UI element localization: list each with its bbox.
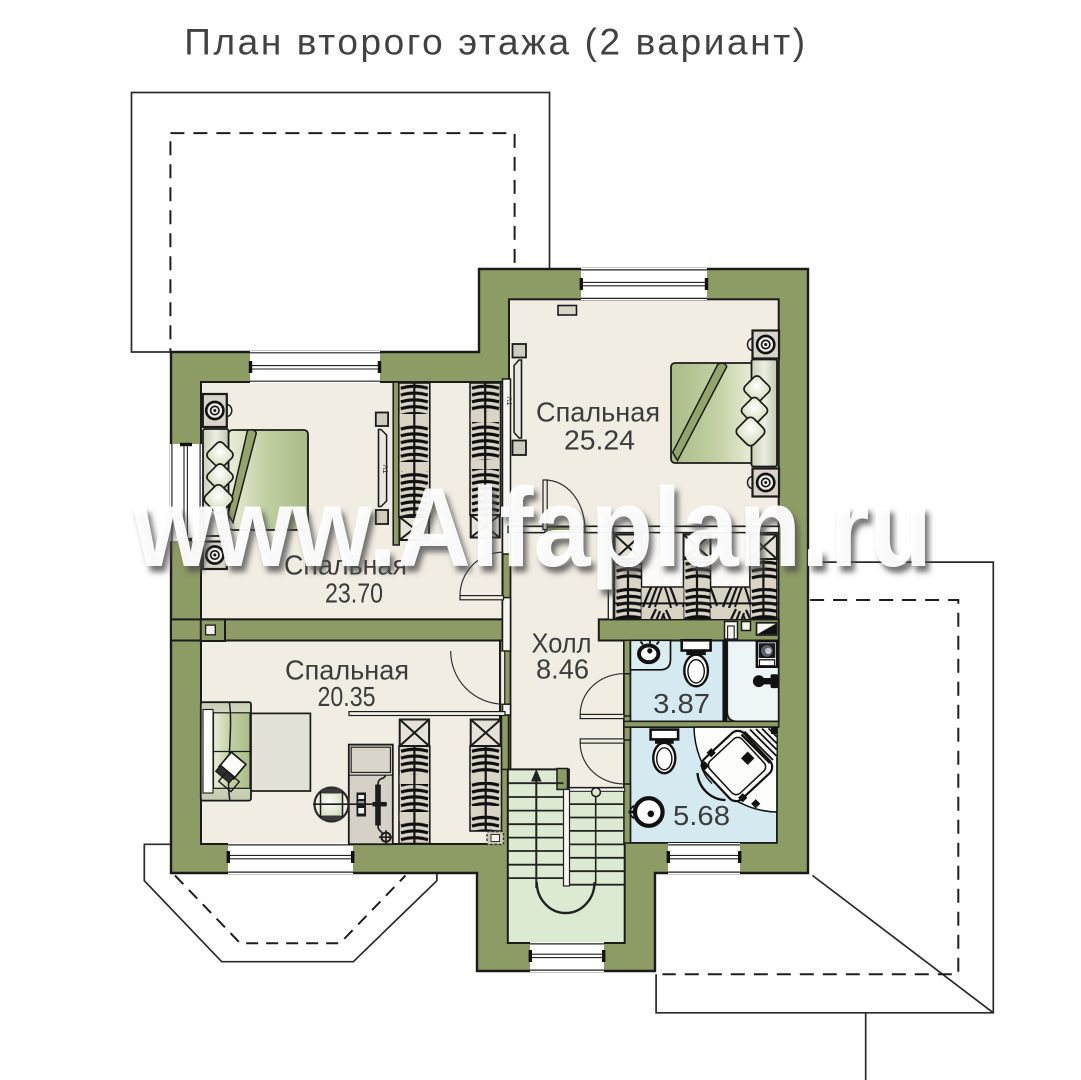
svg-text:8.46: 8.46: [536, 654, 589, 685]
svg-text:5.68: 5.68: [673, 800, 730, 831]
svg-text:3.87: 3.87: [653, 688, 710, 719]
svg-text:25.24: 25.24: [564, 425, 635, 456]
svg-text:www.Alfaplan.ru: www.Alfaplan.ru: [132, 465, 932, 590]
svg-text:TV: TV: [507, 396, 514, 405]
svg-text:20.35: 20.35: [318, 681, 376, 712]
svg-text:Спальная: Спальная: [536, 397, 660, 428]
svg-text:План второго этажа (2 вариант): План второго этажа (2 вариант): [184, 22, 807, 63]
